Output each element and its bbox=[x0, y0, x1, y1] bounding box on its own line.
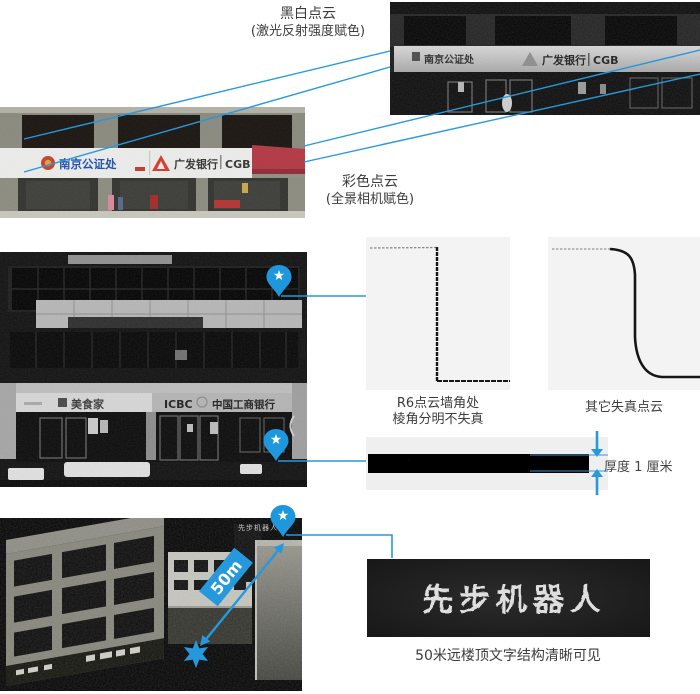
aerial-pointcloud-image: 先步机器人 bbox=[0, 518, 302, 691]
color-pointcloud-image: 南京公证处 广发银行 CGB bbox=[0, 107, 305, 218]
rooftop-detail-text: 先步机器人 bbox=[421, 581, 606, 617]
sharp-corner-panel bbox=[366, 237, 510, 390]
bw-pointcloud-label-line1: 黑白点云 bbox=[226, 6, 390, 23]
pointcloud-infographic: 黑白点云 (激光反射强度赋色) 南京公证处 广发银行 CGB bbox=[0, 0, 700, 694]
sharp-corner-caption: R6点云墙角处 棱角分明不失真 bbox=[366, 396, 510, 428]
distorted-corner-caption: 其它失真点云 bbox=[548, 400, 700, 416]
thickness-strip-panel bbox=[366, 437, 608, 490]
bw-pointcloud-label: 黑白点云 (激光反射强度赋色) bbox=[226, 6, 390, 40]
color-pointcloud-label-line1: 彩色点云 bbox=[290, 174, 450, 191]
middle-pointcloud-image: 美食家 ICBC 中国工商银行 bbox=[0, 252, 307, 487]
color-pointcloud-label-line2: (全景相机赋色) bbox=[326, 192, 414, 207]
thickness-label: 厚度 1 厘米 bbox=[604, 456, 673, 475]
pointcloud-slice-band bbox=[368, 454, 589, 473]
rooftop-text-detail-panel: 先步机器人 bbox=[367, 559, 650, 637]
color-pointcloud-label: 彩色点云 (全景相机赋色) bbox=[290, 174, 450, 208]
sharp-corner-caption-line2: 棱角分明不失真 bbox=[366, 412, 510, 428]
bw-pointcloud-image: 南京公证处 广发银行 CGB bbox=[390, 2, 700, 115]
bottom-caption: 50米远楼顶文字结构清晰可见 bbox=[366, 648, 650, 665]
distorted-corner-panel bbox=[548, 237, 700, 390]
distorted-corner-caption-line: 其它失真点云 bbox=[548, 400, 700, 416]
sharp-corner-caption-line1: R6点云墙角处 bbox=[366, 396, 510, 412]
bw-pointcloud-label-line2: (激光反射强度赋色) bbox=[251, 24, 365, 39]
